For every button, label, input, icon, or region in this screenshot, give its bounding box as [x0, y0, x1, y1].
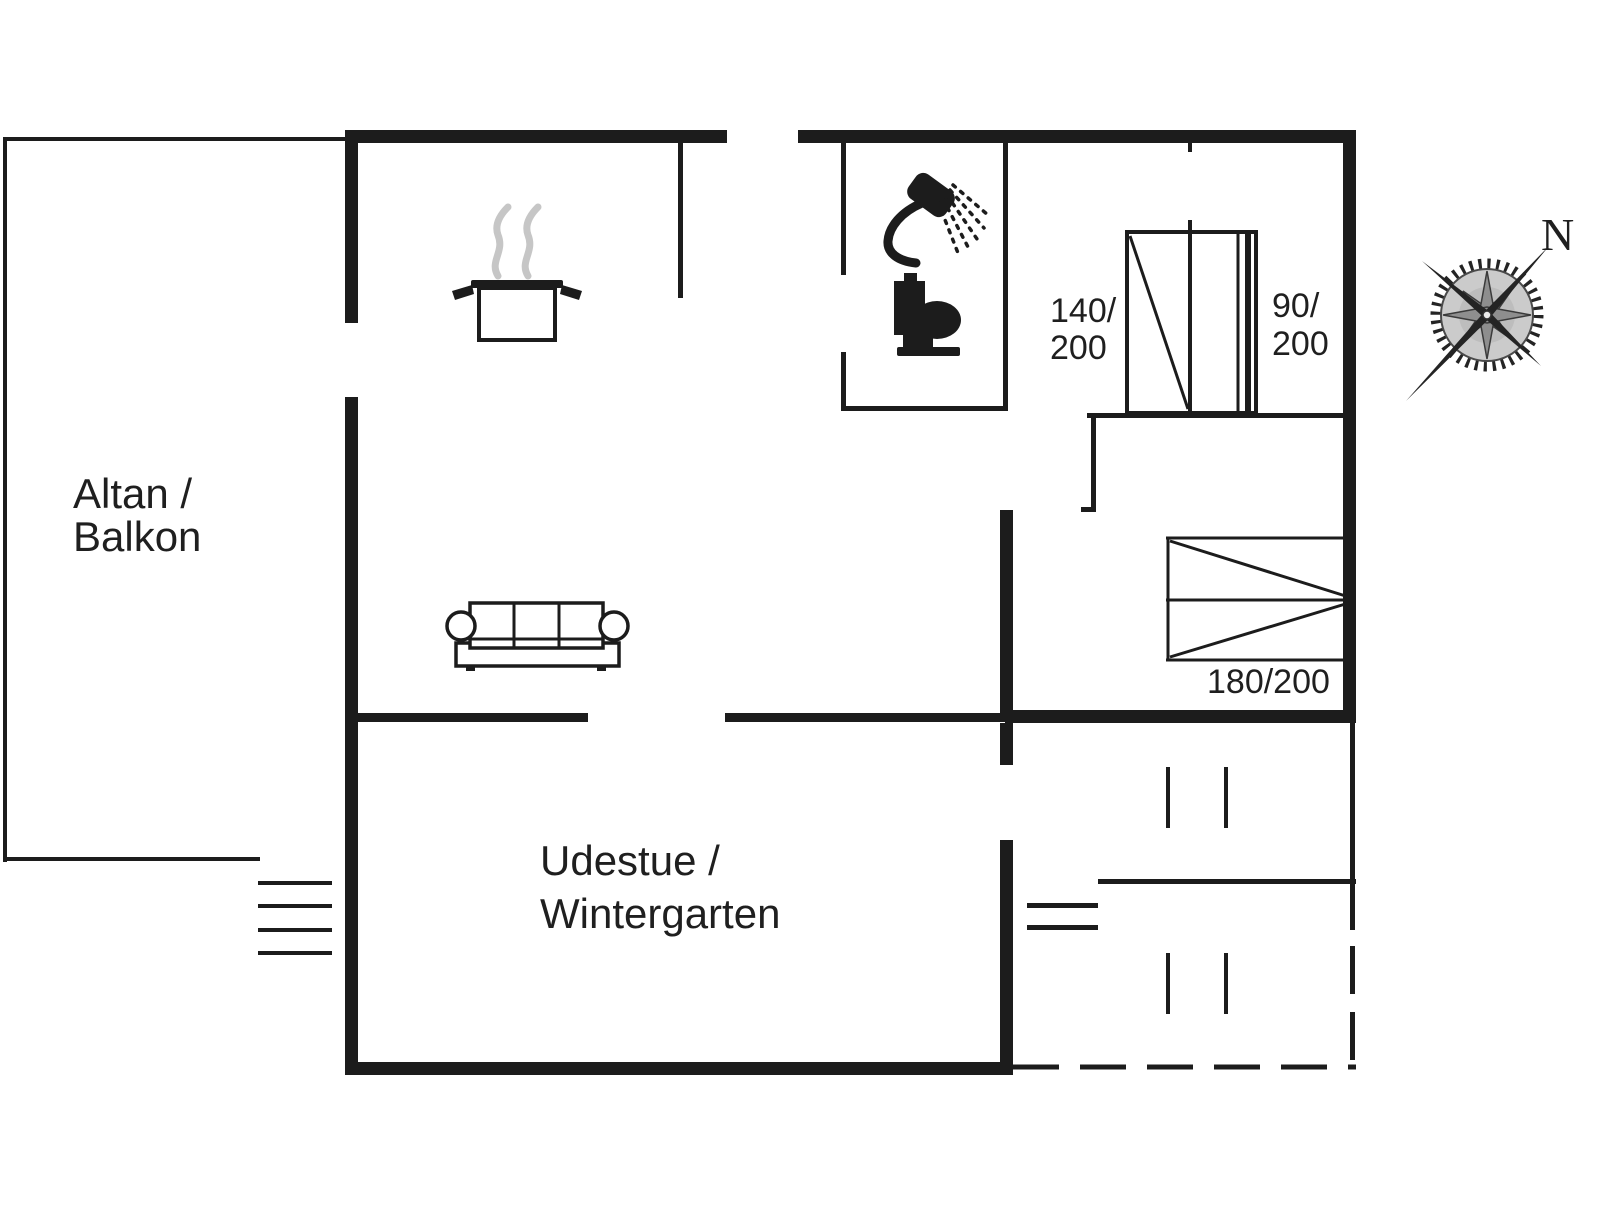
bathroom-east-wall: [1003, 143, 1008, 411]
compass-north-label: N: [1541, 209, 1574, 260]
bedroom-west-wall-stub: [1000, 723, 1013, 765]
pot-with-steam-icon: [452, 207, 582, 340]
bathroom-south-wall: [841, 406, 1008, 411]
door-swing-mark-2a: [1166, 953, 1170, 1014]
bed-180-icon: [1166, 537, 1356, 661]
bathroom-west-wall-upper: [841, 143, 846, 275]
outer-left-wall-lower: [345, 397, 358, 1075]
terrace-threshold-line-1: [1027, 903, 1098, 908]
stairs-icon: [258, 881, 332, 955]
shower-icon: [888, 169, 988, 263]
outer-bottom-wall: [345, 1062, 1013, 1075]
outer-right-wall: [1343, 130, 1356, 723]
winter-garden-label-line1: Udestue /: [540, 837, 720, 884]
bed-140-label-line2: 200: [1050, 329, 1107, 367]
bedroom-west-wall-upper: [1000, 510, 1013, 713]
balcony-north-edge: [3, 137, 349, 141]
bed-90-label-line1: 90/: [1272, 287, 1320, 325]
sofa-icon: [447, 603, 628, 671]
pot-body: [479, 288, 555, 340]
hallway-wall-foot: [1081, 507, 1096, 512]
steam-wisp-left: [495, 207, 508, 276]
outer-top-wall-west: [345, 130, 727, 143]
door-swing-mark-1a: [1166, 767, 1170, 828]
balcony-label-line1: Altan /: [73, 470, 192, 517]
bed-90-label-line2: 200: [1272, 325, 1329, 363]
door-swing-mark-2b: [1224, 953, 1228, 1014]
winter-garden-label-line2: Wintergarten: [540, 890, 780, 937]
outer-left-wall-upper: [345, 130, 358, 323]
bed180-diagonal-bottom: [1170, 602, 1352, 657]
bedroom-south-wall: [1005, 710, 1356, 723]
stair-step-4: [258, 951, 332, 955]
toilet-icon: [894, 273, 961, 356]
terrace-east-wall: [1350, 723, 1355, 930]
terrace-east-dash-1: [1350, 946, 1355, 994]
terrace-east-dash-2: [1350, 1012, 1355, 1060]
pot-handle-left: [452, 285, 474, 300]
bathroom-west-wall-lower: [841, 352, 846, 408]
balcony-south-edge: [3, 857, 260, 861]
door-swing-mark-1b: [1224, 767, 1228, 828]
shower-spray: [938, 185, 988, 253]
stair-step-1: [258, 881, 332, 885]
hallway-west-wall: [1091, 413, 1096, 512]
compass-rose-icon: N: [1406, 209, 1574, 401]
sofa-back: [470, 603, 603, 648]
outer-top-wall-east: [798, 130, 1356, 143]
toilet-button: [904, 273, 917, 282]
bed-140-90-icon: [1127, 220, 1256, 413]
terrace: [1013, 723, 1356, 1067]
compass-hub: [1483, 311, 1491, 319]
balcony-west-edge: [3, 137, 7, 862]
pot-handle-right: [560, 285, 582, 300]
terrace-north-wall: [1098, 879, 1356, 884]
kitchen-partition-wall: [678, 143, 683, 298]
toilet-pedestal: [903, 332, 933, 348]
stair-step-2: [258, 904, 332, 908]
shower-hose: [888, 203, 922, 263]
toilet-base: [897, 347, 960, 356]
terrace-threshold-line-2: [1027, 925, 1098, 930]
living-udestue-wall-east: [725, 713, 1005, 722]
balcony-label-line2: Balkon: [73, 513, 201, 560]
bed-wall-stub: [1188, 143, 1192, 152]
bed-180-label: 180/200: [1207, 663, 1330, 701]
floor-plan: N Altan / Balkon Udestue / Wintergarten …: [0, 0, 1606, 1205]
bed-140-label-line1: 140/: [1050, 292, 1117, 330]
stair-step-3: [258, 928, 332, 932]
bed180-diagonal-top: [1170, 541, 1352, 598]
sofa-armrest-right: [600, 612, 628, 640]
living-udestue-wall-west: [352, 713, 588, 722]
steam-wisp-right: [525, 207, 538, 276]
bedroom-west-wall-lower: [1000, 840, 1013, 1075]
sofa-armrest-left: [447, 612, 475, 640]
